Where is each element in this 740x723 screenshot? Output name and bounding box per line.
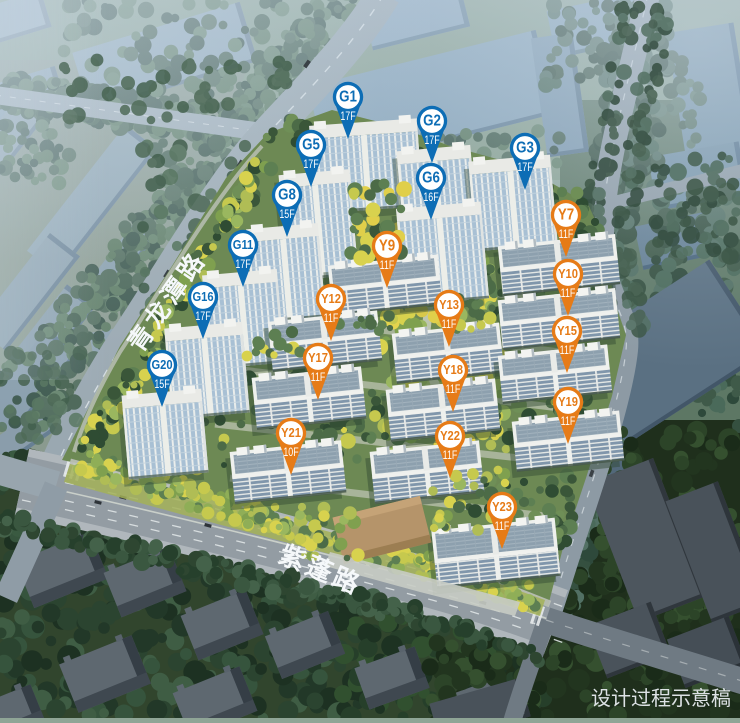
svg-text:11F: 11F <box>446 383 461 397</box>
svg-text:Y12: Y12 <box>321 291 341 306</box>
svg-text:Y18: Y18 <box>443 362 463 377</box>
svg-text:16F: 16F <box>423 191 439 205</box>
svg-text:G5: G5 <box>302 137 320 154</box>
svg-text:10F: 10F <box>283 446 299 460</box>
svg-text:G2: G2 <box>423 113 441 130</box>
svg-text:Y22: Y22 <box>440 428 460 443</box>
svg-text:G3: G3 <box>516 140 534 157</box>
svg-text:11F: 11F <box>443 449 458 463</box>
svg-text:G1: G1 <box>339 89 357 106</box>
svg-text:G6: G6 <box>422 170 440 187</box>
svg-text:11F: 11F <box>442 318 457 332</box>
svg-text:设计过程示意稿: 设计过程示意稿 <box>591 687 731 710</box>
svg-text:Y19: Y19 <box>558 394 578 409</box>
svg-text:Y23: Y23 <box>492 499 512 514</box>
svg-text:11F: 11F <box>559 228 574 242</box>
svg-text:Y15: Y15 <box>557 323 577 338</box>
svg-text:17F: 17F <box>517 161 533 175</box>
svg-text:Y13: Y13 <box>439 297 459 312</box>
svg-text:Y7: Y7 <box>558 207 574 224</box>
svg-text:G16: G16 <box>192 289 213 304</box>
svg-text:11F: 11F <box>495 520 510 534</box>
svg-text:11F: 11F <box>561 415 576 429</box>
svg-text:G8: G8 <box>278 187 296 204</box>
svg-text:11F: 11F <box>560 344 575 358</box>
svg-text:Y21: Y21 <box>281 425 301 440</box>
svg-text:Y17: Y17 <box>308 350 328 365</box>
svg-text:11F: 11F <box>324 312 339 326</box>
svg-text:Y9: Y9 <box>379 238 395 255</box>
svg-text:15F: 15F <box>154 378 170 392</box>
svg-text:15F: 15F <box>279 208 295 222</box>
svg-text:11F: 11F <box>561 287 576 301</box>
svg-text:17F: 17F <box>235 258 251 272</box>
svg-text:17F: 17F <box>424 134 440 148</box>
svg-text:11F: 11F <box>311 371 326 385</box>
svg-text:G20: G20 <box>151 357 172 372</box>
svg-text:17F: 17F <box>303 158 319 172</box>
svg-text:Y10: Y10 <box>558 266 578 281</box>
svg-text:17F: 17F <box>340 110 356 124</box>
svg-text:17F: 17F <box>195 310 211 324</box>
svg-text:11F: 11F <box>380 259 395 273</box>
svg-text:G11: G11 <box>233 237 254 252</box>
